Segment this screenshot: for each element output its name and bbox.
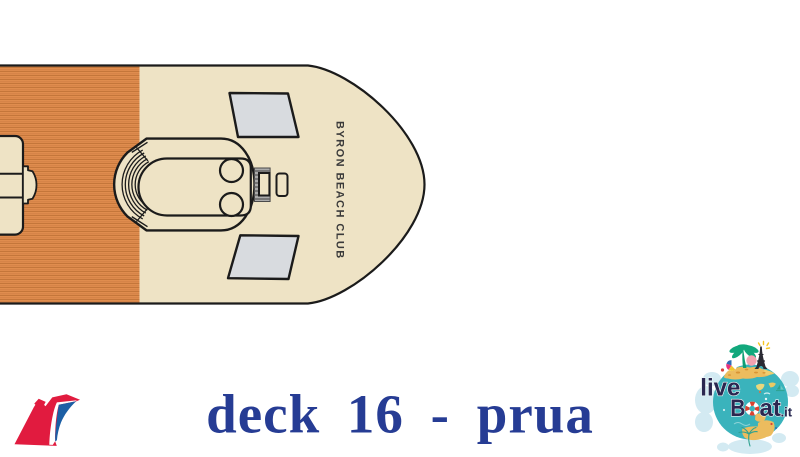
svg-text:BYRON BEACH CLUB: BYRON BEACH CLUB <box>333 121 345 260</box>
svg-text:deck 16 - prua: deck 16 - prua <box>206 384 594 445</box>
svg-text:at: at <box>760 395 781 422</box>
svg-text:B: B <box>730 395 745 422</box>
svg-text:.it: .it <box>781 404 793 419</box>
